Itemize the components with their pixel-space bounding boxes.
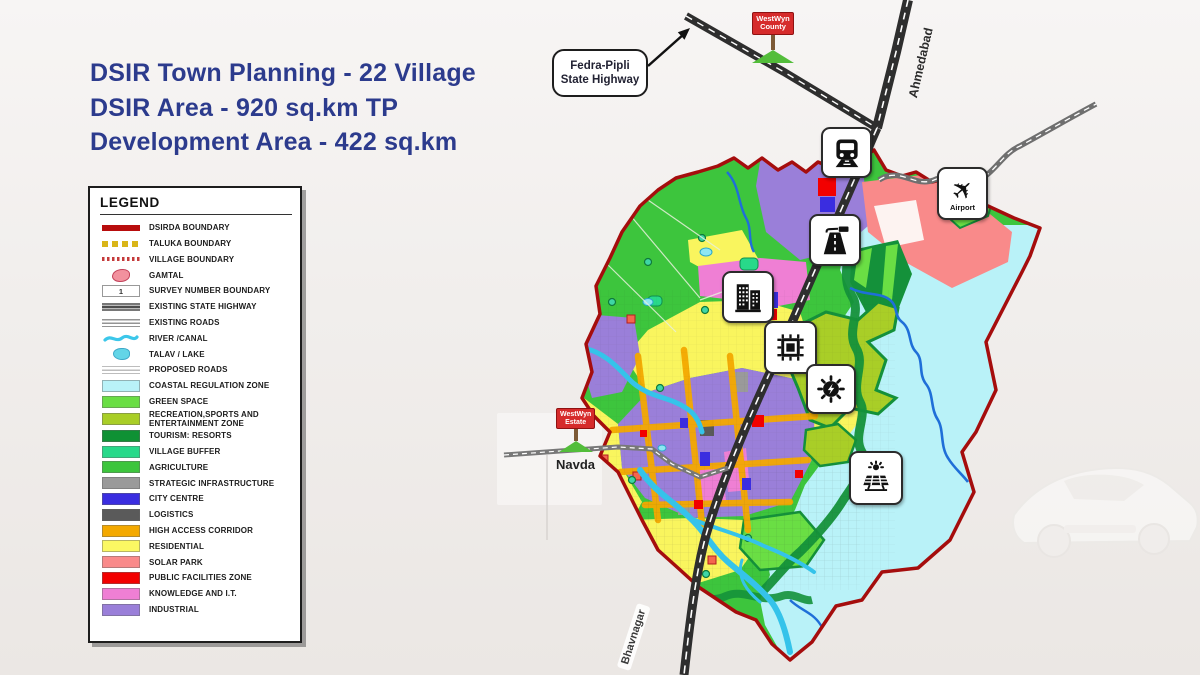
legend-swatch-fill [102, 588, 140, 600]
legend-swatch-proposed [102, 366, 140, 374]
legend-heading: LEGEND [100, 195, 292, 215]
legend-item: 1SURVEY NUMBER BOUNDARY [100, 283, 292, 299]
legend-swatch-roads [102, 319, 140, 327]
highway-icon [817, 222, 853, 258]
legend-swatch-fill [102, 446, 140, 458]
sign-base [752, 50, 794, 63]
legend-swatch-fill [102, 477, 140, 489]
buildings-icon [730, 279, 766, 315]
legend-item: RECREATION,SPORTS AND ENTERTAINMENT ZONE [100, 410, 292, 428]
legend-label: GREEN SPACE [149, 397, 208, 406]
legend-swatch-fill [102, 556, 140, 568]
legend-label: TALUKA BOUNDARY [149, 239, 231, 248]
legend-label: DSIRDA BOUNDARY [149, 223, 230, 232]
legend-item: EXISTING STATE HIGHWAY [100, 299, 292, 315]
legend-item: LOGISTICS [100, 507, 292, 523]
legend-swatch-lake [102, 348, 140, 360]
legend-swatch-numbox: 1 [102, 285, 140, 297]
legend-label: INDUSTRIAL [149, 605, 199, 614]
legend-swatch-fill [102, 380, 140, 392]
legend-item: GAMTAL [100, 267, 292, 283]
sign-text: County [756, 23, 789, 31]
legend-swatch-dashline [102, 241, 140, 247]
legend-swatch-blob [102, 269, 140, 281]
legend-label: VILLAGE BOUNDARY [149, 255, 234, 264]
legend-item: DSIRDA BOUNDARY [100, 220, 292, 236]
legend-swatch-fill [102, 525, 140, 537]
legend-label: KNOWLEDGE AND I.T. [149, 589, 237, 598]
page: DSIR Town Planning - 22 Village DSIR Are… [0, 0, 1200, 675]
sign-text: WestWyn [560, 411, 591, 419]
legend-item: RESIDENTIAL [100, 539, 292, 555]
train-icon [830, 136, 864, 170]
label-navda: Navda [556, 457, 595, 472]
legend-item: RIVER /CANAL [100, 331, 292, 347]
legend-item: HIGH ACCESS CORRIDOR [100, 523, 292, 539]
legend-label: PUBLIC FACILITIES ZONE [149, 573, 252, 582]
legend-item: EXISTING ROADS [100, 315, 292, 331]
legend-swatch-highway [102, 303, 140, 311]
page-title: DSIR Town Planning - 22 Village DSIR Are… [90, 56, 476, 160]
legend-label: HIGH ACCESS CORRIDOR [149, 526, 253, 535]
callout-line-1: Fedra-Pipli [570, 59, 629, 73]
svg-text:✈: ✈ [947, 175, 979, 205]
legend-swatch-fill [102, 493, 140, 505]
legend-item: PUBLIC FACILITIES ZONE [100, 570, 292, 586]
legend-label: EXISTING STATE HIGHWAY [149, 302, 257, 311]
legend-label: RECREATION,SPORTS AND ENTERTAINMENT ZONE [149, 410, 292, 428]
legend-swatch-fill [102, 604, 140, 616]
legend-label: PROPOSED ROADS [149, 365, 228, 374]
legend-item: COASTAL REGULATION ZONE [100, 378, 292, 394]
legend-label: GAMTAL [149, 271, 184, 280]
zone-village-buffer [740, 258, 758, 270]
sign-text: Estate [560, 419, 591, 427]
solar-farm-marker [849, 451, 903, 505]
legend-swatch-wave [102, 332, 140, 344]
airport-marker: ✈ Airport [937, 167, 988, 220]
legend-swatch-fill [102, 540, 140, 552]
title-line-1: DSIR Town Planning - 22 Village [90, 56, 476, 91]
highway-marker [809, 214, 861, 266]
chip-icon [772, 329, 809, 366]
legend-swatch-fill [102, 572, 140, 584]
title-line-2: DSIR Area - 920 sq.km TP [90, 91, 476, 126]
legend-item: VILLAGE BUFFER [100, 444, 292, 460]
legend-panel: LEGEND DSIRDA BOUNDARYTALUKA BOUNDARYVIL… [88, 186, 302, 643]
legend-swatch-fill [102, 509, 140, 521]
energy-sun-bolt-icon [814, 372, 848, 406]
solar-panel-icon [857, 459, 895, 497]
sign-post [771, 35, 775, 50]
legend-item: CITY CENTRE [100, 491, 292, 507]
legend-label: SURVEY NUMBER BOUNDARY [149, 286, 270, 295]
legend-label: RESIDENTIAL [149, 542, 204, 551]
ahmedabad-highway [877, 0, 908, 128]
legend-swatch-fill [102, 430, 140, 442]
city-centre-marker [722, 271, 774, 323]
legend-label: EXISTING ROADS [149, 318, 220, 327]
river-wave-glyph [103, 332, 139, 344]
legend-swatch-fill [102, 461, 140, 473]
westwyn-estate-sign: WestWyn Estate [556, 408, 595, 452]
legend-item: STRATEGIC INFRASTRUCTURE [100, 475, 292, 491]
legend-label: TOURISM: RESORTS [149, 431, 232, 440]
legend-swatch-dotline [102, 257, 140, 261]
westwyn-county-sign: WestWyn County [752, 12, 794, 63]
legend-item: VILLAGE BOUNDARY [100, 252, 292, 268]
airport-label: Airport [950, 203, 975, 212]
legend-item: TOURISM: RESORTS [100, 428, 292, 444]
survey-number: 1 [119, 287, 123, 296]
sign-board: WestWyn County [752, 12, 793, 35]
legend-label: RIVER /CANAL [149, 334, 208, 343]
legend-item: AGRICULTURE [100, 460, 292, 476]
energy-marker [806, 364, 856, 414]
legend-label: LOGISTICS [149, 510, 193, 519]
callout-arrow [648, 28, 690, 66]
legend-item: TALAV / LAKE [100, 346, 292, 362]
sign-base [559, 441, 593, 452]
legend-swatch-thickline [102, 225, 140, 231]
legend-label: STRATEGIC INFRASTRUCTURE [149, 479, 274, 488]
legend-item: KNOWLEDGE AND I.T. [100, 586, 292, 602]
legend-label: SOLAR PARK [149, 558, 203, 567]
legend-label: COASTAL REGULATION ZONE [149, 381, 269, 390]
legend-label: AGRICULTURE [149, 463, 208, 472]
train-station-marker [821, 127, 872, 178]
legend-label: VILLAGE BUFFER [149, 447, 220, 456]
legend-items: DSIRDA BOUNDARYTALUKA BOUNDARYVILLAGE BO… [100, 220, 292, 618]
airplane-icon: ✈ [947, 175, 979, 205]
fedra-pipli-callout: Fedra-Pipli State Highway [552, 49, 648, 97]
legend-swatch-fill [102, 413, 140, 425]
legend-item: TALUKA BOUNDARY [100, 236, 292, 252]
sign-board: WestWyn Estate [556, 408, 595, 429]
callout-line-2: State Highway [561, 73, 640, 87]
legend-label: TALAV / LAKE [149, 350, 205, 359]
legend-item: SOLAR PARK [100, 554, 292, 570]
legend-item: GREEN SPACE [100, 394, 292, 410]
legend-item: INDUSTRIAL [100, 602, 292, 618]
title-line-3: Development Area - 422 sq.km [90, 125, 476, 160]
sign-post [574, 429, 578, 441]
legend-label: CITY CENTRE [149, 494, 204, 503]
legend-swatch-fill [102, 396, 140, 408]
legend-item: PROPOSED ROADS [100, 362, 292, 378]
